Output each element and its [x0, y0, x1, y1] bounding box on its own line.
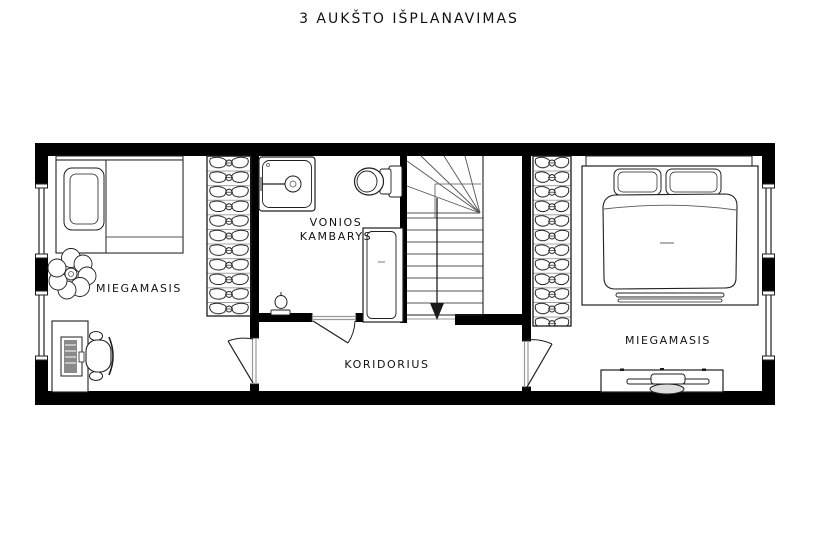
plant-center	[65, 268, 77, 280]
wall-top	[35, 143, 775, 156]
window-sill	[36, 356, 48, 360]
toilet	[355, 166, 403, 197]
window-sill	[36, 291, 48, 295]
door-bedroom-left	[228, 338, 259, 384]
window-sill	[36, 254, 48, 258]
bed-double	[582, 156, 758, 305]
page-title: 3 AUKŠTO IŠPLANAVIMAS	[299, 9, 519, 27]
wardrobe-right-hangers	[533, 156, 571, 326]
stair-winder-line	[444, 156, 480, 213]
window-left-2	[36, 291, 48, 360]
stair-winder-line	[407, 161, 480, 213]
bed-pillow-inner	[70, 174, 98, 224]
bed-headboard	[56, 156, 183, 160]
bed-blanket	[603, 194, 737, 289]
plant-leaf	[48, 259, 66, 277]
room-label-bathroom-line2: KAMBARYS	[300, 230, 373, 243]
bed-blanket	[106, 160, 183, 253]
window-left-1	[36, 184, 48, 258]
room-label-corridor: KORIDORIUS	[344, 358, 429, 371]
shower	[259, 157, 315, 211]
door-swing-arc	[228, 338, 253, 341]
wall-bedroomleft-corridor-stub	[250, 384, 259, 391]
shower-head	[285, 176, 301, 192]
room-label-bedroom-left: MIEGAMASIS	[96, 282, 182, 295]
floor-plan-drawing: 3 AUKŠTO IŠPLANAVIMAS	[0, 0, 820, 547]
wall-right-pier	[762, 256, 775, 293]
dresser-knob	[702, 369, 706, 372]
door-leaf	[228, 341, 253, 383]
toilet-bowl-inner	[357, 171, 377, 192]
door-leaf	[527, 344, 552, 387]
window-right-2	[763, 291, 775, 360]
dresser-knob	[660, 368, 664, 371]
washbasin-bowl	[275, 296, 287, 309]
washbasin	[271, 292, 290, 315]
bed-headboard-shelf	[586, 156, 752, 166]
wall-bedroomright-stub	[522, 387, 531, 392]
wall-corridor-bedroomright	[522, 156, 531, 341]
wall-left-upper	[35, 143, 48, 188]
bed-single	[56, 156, 183, 253]
window-sill	[763, 184, 775, 188]
chair-seat	[86, 340, 111, 372]
tv-body	[651, 374, 685, 384]
door-bedroom-right	[522, 340, 552, 387]
wall-landing-bottom	[455, 314, 531, 325]
room-label-bedroom-right: MIEGAMASIS	[625, 334, 711, 347]
stair-winder-line	[421, 156, 480, 213]
dresser-with-tv	[601, 368, 723, 394]
window-sill	[763, 291, 775, 295]
plant	[48, 249, 96, 300]
bathtub-inner	[367, 232, 396, 319]
office-chair	[86, 332, 113, 381]
chair-armrest	[90, 372, 103, 381]
bed-foot-sheet	[618, 299, 722, 302]
washbasin-base	[271, 310, 290, 315]
floor-plan-page: 3 AUKŠTO IŠPLANAVIMAS	[0, 0, 820, 547]
wall-left-lower	[35, 359, 48, 405]
chair-armrest	[90, 332, 103, 341]
door-swing-arc	[348, 321, 355, 343]
stair-down-arrow-icon	[430, 303, 444, 320]
window-sill	[36, 184, 48, 188]
window-sill	[763, 356, 775, 360]
stair-winder-line	[407, 186, 480, 213]
door-bathroom	[312, 313, 356, 343]
wall-right-upper	[762, 143, 775, 188]
wall-right-lower	[762, 359, 775, 405]
bed-pillow-inner	[618, 172, 657, 192]
door-leaf	[313, 321, 348, 343]
wall-left-pier	[35, 256, 48, 293]
wardrobe-left-hangers	[207, 156, 251, 316]
keyboard	[79, 352, 84, 362]
tv-stand	[650, 384, 684, 394]
bed-pillow-inner	[670, 172, 717, 192]
window-right-1	[763, 184, 775, 258]
room-label-bathroom-line1: VONIOS	[310, 216, 363, 229]
dresser-knob	[620, 369, 624, 372]
desk-with-computer	[52, 321, 88, 392]
bed-foot-sheet	[616, 293, 724, 297]
window-sill	[763, 254, 775, 258]
staircase	[407, 156, 483, 320]
